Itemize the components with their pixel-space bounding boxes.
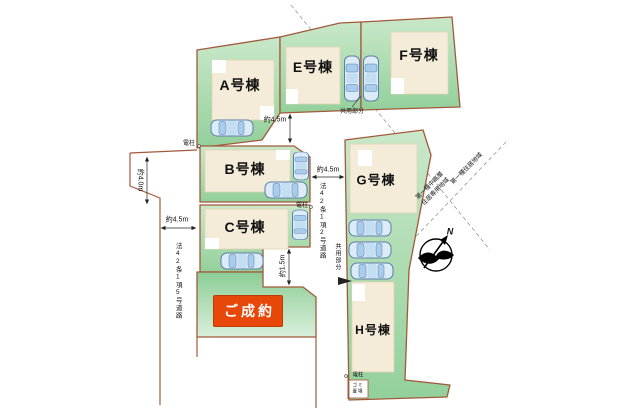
garbage-box-label: ゴミ置場 [350, 383, 366, 396]
utility-pole-label-1: 電柱 [183, 141, 195, 147]
utility-pole-dot [198, 145, 201, 148]
shared-area-label-2: 共用部分 [334, 243, 340, 271]
car [349, 220, 391, 236]
lot-b-label: B号棟 [224, 162, 265, 176]
lot-c-label: C号棟 [224, 220, 265, 234]
utility-pole-dot [345, 375, 348, 378]
building-f-notch [391, 78, 404, 94]
utility-pole-label-2: 電柱 [296, 203, 308, 209]
lot-e-label: E号棟 [293, 60, 333, 74]
road-edge-top-left [130, 150, 197, 153]
utility-pole-label-3: 電柱 [352, 373, 363, 379]
dim-center-width-label: 約4.5m [317, 167, 340, 174]
car [211, 120, 253, 136]
car [349, 242, 391, 258]
shared-area-label-1: 共用部分 [340, 109, 364, 115]
building-c-notch [205, 238, 219, 249]
building-g-notch [358, 150, 372, 166]
car [294, 152, 309, 180]
car [293, 210, 308, 240]
road-center-label: 法42条1項2号道路 [318, 183, 325, 260]
lot-a-label: A号棟 [219, 78, 260, 92]
dim-top-width-label: 約4.5m [264, 117, 287, 124]
building-e-notch [286, 89, 298, 104]
car [345, 56, 360, 101]
compass-north-label: N [447, 228, 454, 237]
lot-g-label: G号棟 [356, 174, 395, 187]
site-plan-image: A号棟 E号棟 F号棟 B号棟 C号棟 G号棟 H号棟 ご成約 法42条1項5号… [0, 0, 620, 413]
utility-pole-dot [310, 206, 313, 209]
car [364, 56, 379, 101]
road-edge-left [130, 153, 160, 405]
car [221, 253, 263, 269]
road-left-label: 法42条1項5号道路 [174, 243, 181, 320]
lot-f-label: F号棟 [399, 48, 439, 62]
compass [418, 235, 454, 271]
building-h-notch [352, 284, 365, 301]
car [265, 182, 307, 198]
sold-badge: ご成約 [213, 295, 283, 327]
lot-h-label: H号棟 [355, 324, 391, 336]
dim-left-depth-label: 約4.0m [137, 169, 144, 192]
dim-left-width-label: 約4.5m [166, 217, 189, 224]
car [351, 263, 393, 279]
building-a-notch [212, 60, 226, 73]
building-b-notch [276, 150, 290, 160]
dim-path-width-label: 約1.5m [280, 255, 287, 278]
